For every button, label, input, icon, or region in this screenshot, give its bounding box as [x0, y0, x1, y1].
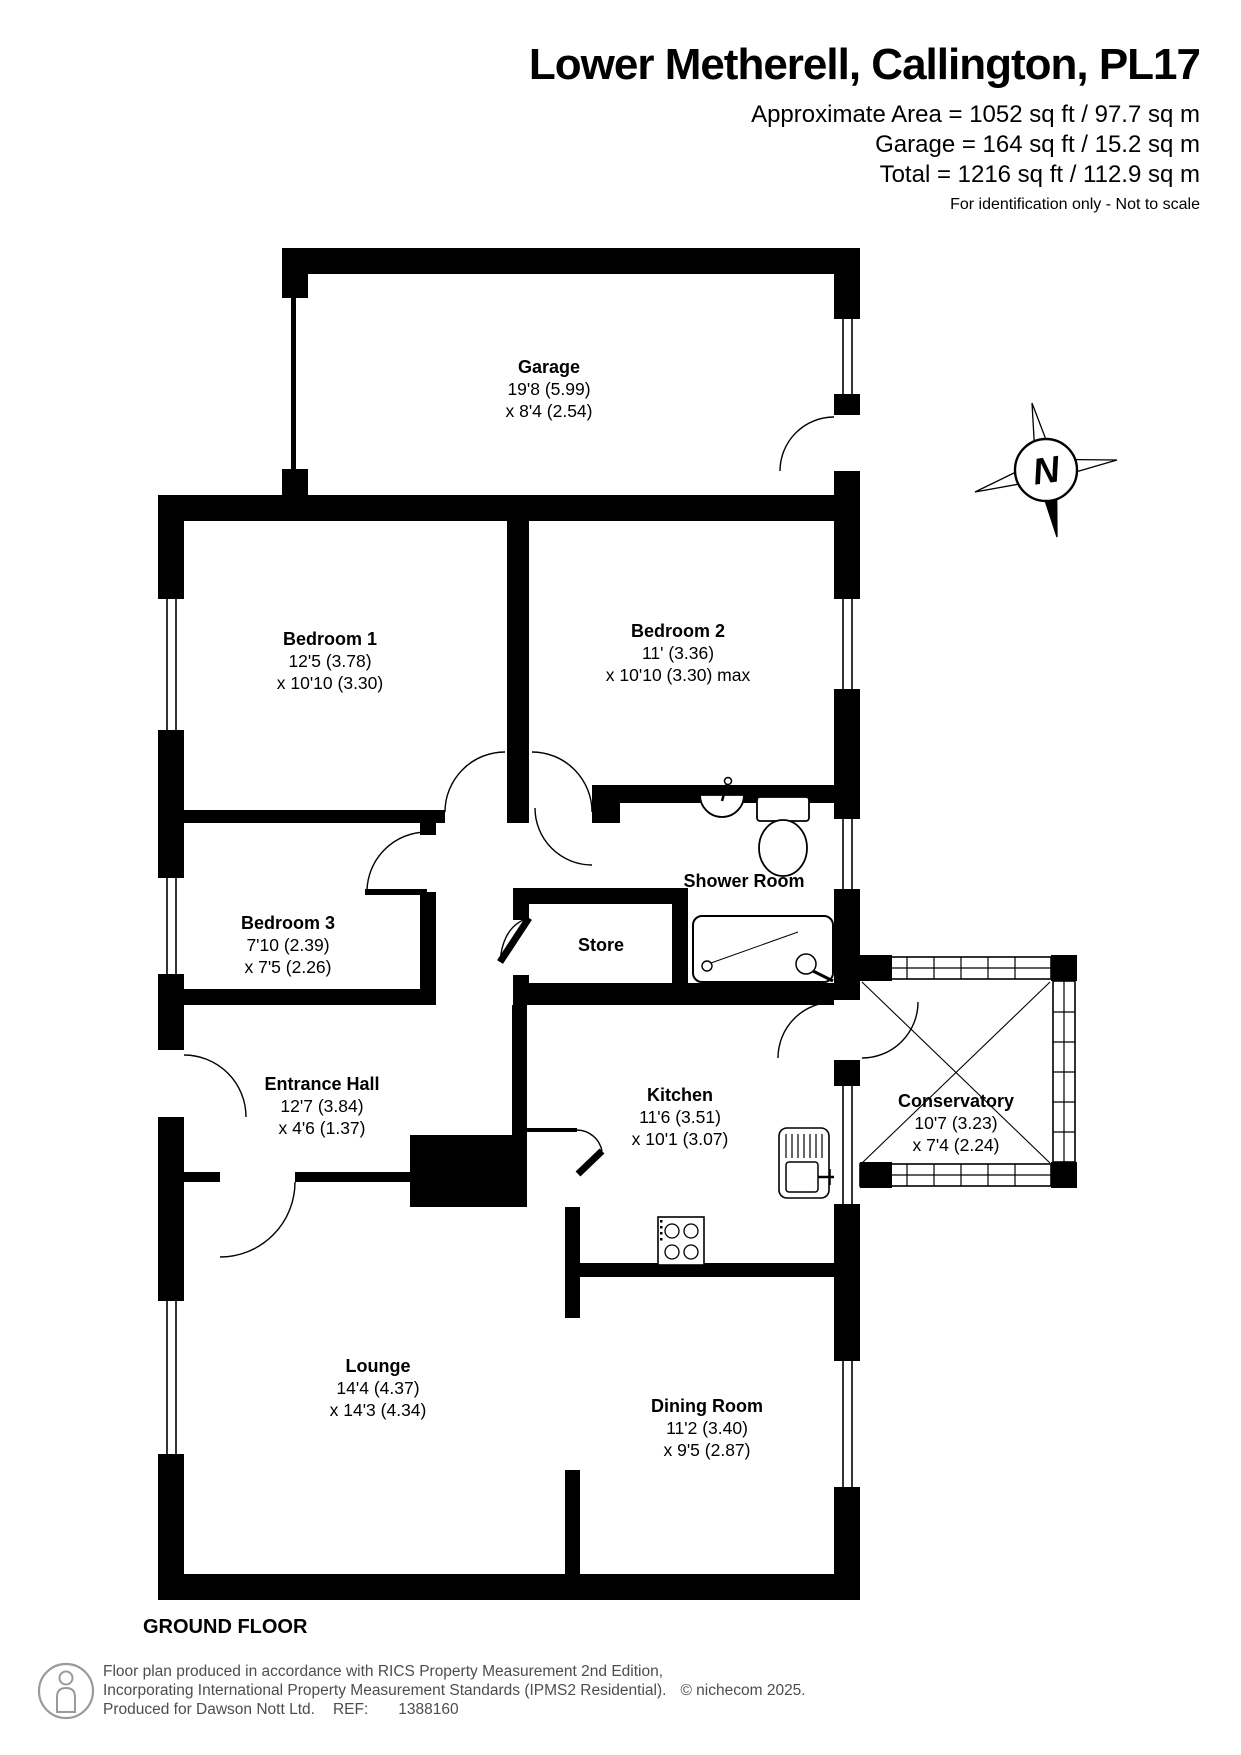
header: Lower Metherell, Callington, PL17 Approx… — [529, 40, 1200, 214]
window-lounge-icon — [158, 1300, 184, 1455]
footer-ipms: Incorporating International Property Mea… — [103, 1682, 666, 1699]
shower-tray-icon — [693, 916, 833, 982]
floor-title: GROUND FLOOR — [143, 1616, 307, 1639]
window-garage-icon — [834, 318, 860, 395]
room-label-entrance-hall: Entrance Hall 12'7 (3.84) x 4'6 (1.37) — [264, 1073, 379, 1139]
windows — [158, 318, 860, 1488]
room-label-bedroom3: Bedroom 3 7'10 (2.39) x 7'5 (2.26) — [241, 912, 335, 978]
window-bedroom2-icon — [834, 598, 860, 690]
scale-note: For identification only - Not to scale — [529, 196, 1200, 214]
floor-plan-svg: N — [0, 0, 1241, 1755]
room-label-bedroom1: Bedroom 1 12'5 (3.78) x 10'10 (3.30) — [277, 628, 383, 694]
room-label-store: Store — [578, 934, 624, 956]
footer-line1: Floor plan produced in accordance with R… — [103, 1662, 663, 1681]
window-bedroom1-icon — [158, 598, 184, 731]
footer-ref-value: 1388160 — [398, 1701, 458, 1718]
footer-line3: Produced for Dawson Nott Ltd.REF:1388160 — [103, 1700, 459, 1719]
approximate-area: Approximate Area = 1052 sq ft / 97.7 sq … — [529, 100, 1200, 130]
sink-icon — [779, 1128, 834, 1198]
total-area: Total = 1216 sq ft / 112.9 sq m — [529, 160, 1200, 190]
page-title: Lower Metherell, Callington, PL17 — [529, 40, 1200, 90]
footer-copyright: © nichecom 2025. — [680, 1682, 805, 1699]
garage-area: Garage = 164 sq ft / 15.2 sq m — [529, 130, 1200, 160]
basin-icon — [700, 778, 744, 818]
toilet-icon — [757, 797, 809, 876]
room-label-conservatory: Conservatory 10'7 (3.23) x 7'4 (2.24) — [898, 1090, 1014, 1156]
footer-ref-label: REF: — [333, 1701, 368, 1718]
window-dining-icon — [834, 1360, 860, 1488]
window-shower-icon — [834, 818, 860, 890]
room-label-kitchen: Kitchen 11'6 (3.51) x 10'1 (3.07) — [632, 1084, 729, 1150]
floor-plan-page: N Lower Metherell, Callington, PL17 Appr… — [0, 0, 1241, 1755]
room-label-bedroom2: Bedroom 2 11' (3.36) x 10'10 (3.30) max — [606, 620, 750, 686]
footer-line2: Incorporating International Property Mea… — [103, 1681, 806, 1700]
person-logo-icon — [39, 1664, 93, 1718]
window-bedroom3-icon — [158, 877, 184, 975]
footer-produced-for: Produced for Dawson Nott Ltd. — [103, 1701, 315, 1718]
room-label-lounge: Lounge 14'4 (4.37) x 14'3 (4.34) — [330, 1355, 427, 1421]
window-kitchen-icon — [834, 1085, 860, 1205]
room-label-shower-room: Shower Room — [683, 870, 804, 892]
room-label-garage: Garage 19'8 (5.99) x 8'4 (2.54) — [506, 356, 593, 422]
compass-icon: N — [975, 403, 1117, 537]
hob-icon — [658, 1217, 704, 1265]
room-label-dining-room: Dining Room 11'2 (3.40) x 9'5 (2.87) — [651, 1395, 763, 1461]
